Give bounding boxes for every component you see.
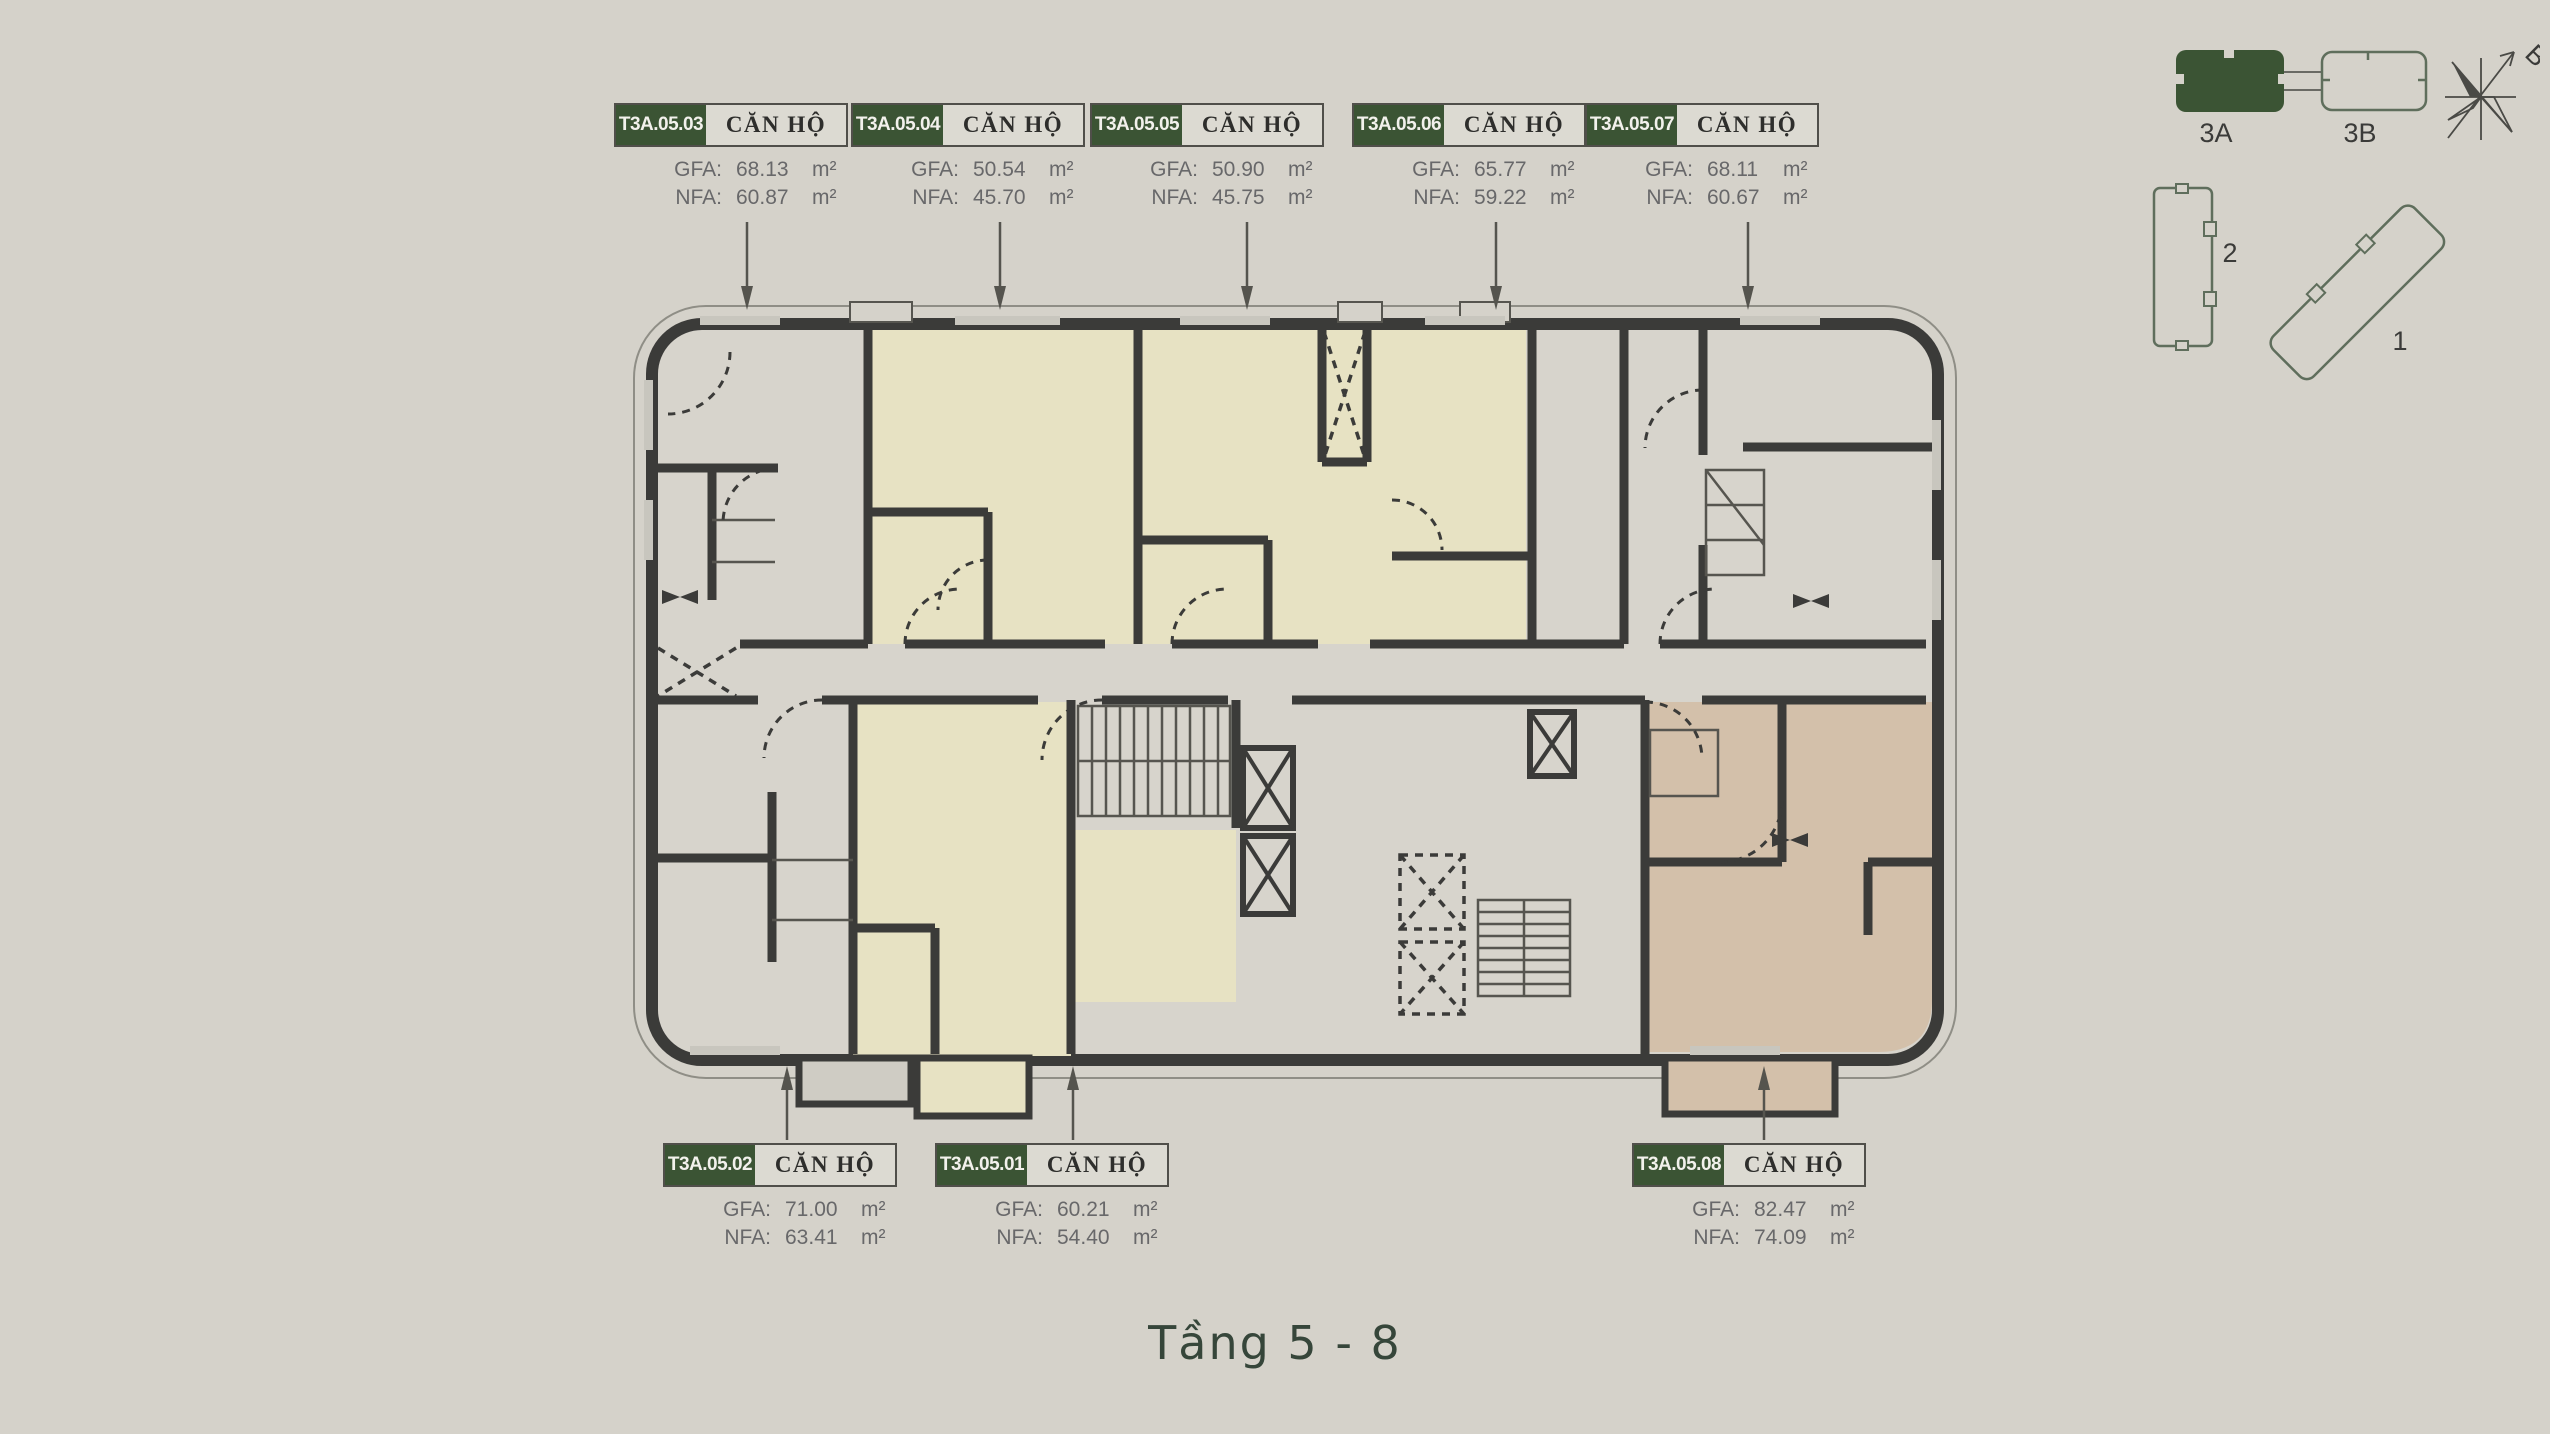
unit-area-t3a0501 bbox=[853, 702, 1071, 1056]
apartment-type-label: CĂN HỘ bbox=[1677, 105, 1817, 145]
gfa-row: GFA:71.00m² bbox=[719, 1196, 897, 1224]
unit-callout-t3a0508: T3A.05.08 CĂN HỘ GFA:82.47m² NFA:74.09m² bbox=[1632, 1066, 1866, 1252]
unit-code-badge: T3A.05.07 bbox=[1587, 105, 1677, 145]
unit-callout-t3a0506: T3A.05.06 CĂN HỘ GFA:65.77m² NFA:59.22m² bbox=[1352, 103, 1586, 212]
leader-arrow-up bbox=[779, 1066, 795, 1140]
nfa-row: NFA:60.87m² bbox=[670, 184, 848, 212]
unit-callout-t3a0505: T3A.05.05 CĂN HỘ GFA:50.90m² NFA:45.75m² bbox=[1090, 103, 1324, 212]
minimap-label-2: 2 bbox=[2222, 238, 2237, 268]
unit-areas: GFA:68.13m² NFA:60.87m² bbox=[614, 156, 848, 212]
unit-callout-t3a0504: T3A.05.04 CĂN HỘ GFA:50.54m² NFA:45.70m² bbox=[851, 103, 1085, 212]
apartment-type-label: CĂN HỘ bbox=[1027, 1145, 1167, 1185]
minimap-label-3a: 3A bbox=[2199, 118, 2232, 148]
leader-arrow-down bbox=[1740, 222, 1756, 310]
site-minimap: 3A 3B B 2 1 bbox=[2120, 10, 2540, 390]
unit-tag[interactable]: T3A.05.06 CĂN HỘ bbox=[1352, 103, 1586, 147]
unit-areas: GFA:60.21m² NFA:54.40m² bbox=[935, 1196, 1169, 1252]
nfa-row: NFA:60.67m² bbox=[1641, 184, 1819, 212]
minimap-tower-3a[interactable] bbox=[2172, 46, 2290, 112]
unit-code-badge: T3A.05.01 bbox=[937, 1145, 1027, 1185]
window-sill bbox=[850, 302, 912, 322]
unit-tag[interactable]: T3A.05.01 CĂN HỘ bbox=[935, 1143, 1169, 1187]
unit-tag[interactable]: T3A.05.04 CĂN HỘ bbox=[851, 103, 1085, 147]
page-title: Tầng 5 - 8 bbox=[0, 1316, 2550, 1370]
minimap-tower-3b[interactable] bbox=[2322, 52, 2426, 110]
floorplan-drawing bbox=[600, 270, 2000, 1140]
nfa-row: NFA:74.09m² bbox=[1688, 1224, 1866, 1252]
unit-tag[interactable]: T3A.05.08 CĂN HỘ bbox=[1632, 1143, 1866, 1187]
window-sill bbox=[1338, 302, 1382, 322]
unit-code-badge: T3A.05.04 bbox=[853, 105, 943, 145]
gfa-row: GFA:68.11m² bbox=[1641, 156, 1819, 184]
apartment-type-label: CĂN HỘ bbox=[755, 1145, 895, 1185]
unit-areas: GFA:68.11m² NFA:60.67m² bbox=[1585, 156, 1819, 212]
unit-area-top-cream bbox=[868, 330, 1526, 644]
compass-icon bbox=[2445, 52, 2516, 140]
minimap-building-1 bbox=[2262, 197, 2448, 383]
apartment-type-label: CĂN HỘ bbox=[1182, 105, 1322, 145]
leader-arrow-up bbox=[1065, 1066, 1081, 1140]
leader-arrow-down bbox=[992, 222, 1008, 310]
gfa-row: GFA:82.47m² bbox=[1688, 1196, 1866, 1224]
gfa-row: GFA:65.77m² bbox=[1408, 156, 1586, 184]
nfa-row: NFA:54.40m² bbox=[991, 1224, 1169, 1252]
unit-areas: GFA:65.77m² NFA:59.22m² bbox=[1352, 156, 1586, 212]
unit-tag[interactable]: T3A.05.07 CĂN HỘ bbox=[1585, 103, 1819, 147]
leader-arrow-down bbox=[739, 222, 755, 310]
unit-area-core-cream bbox=[1071, 830, 1236, 1002]
nfa-row: NFA:45.75m² bbox=[1146, 184, 1324, 212]
minimap-label-3b: 3B bbox=[2343, 118, 2376, 148]
apartment-type-label: CĂN HỘ bbox=[943, 105, 1083, 145]
unit-areas: GFA:82.47m² NFA:74.09m² bbox=[1632, 1196, 1866, 1252]
leader-arrow-down bbox=[1239, 222, 1255, 310]
unit-callout-t3a0507: T3A.05.07 CĂN HỘ GFA:68.11m² NFA:60.67m² bbox=[1585, 103, 1819, 212]
unit-areas: GFA:50.54m² NFA:45.70m² bbox=[851, 156, 1085, 212]
unit-areas: GFA:50.90m² NFA:45.75m² bbox=[1090, 156, 1324, 212]
unit-code-badge: T3A.05.02 bbox=[665, 1145, 755, 1185]
unit-tag[interactable]: T3A.05.02 CĂN HỘ bbox=[663, 1143, 897, 1187]
unit-code-badge: T3A.05.08 bbox=[1634, 1145, 1724, 1185]
apartment-type-label: CĂN HỘ bbox=[1444, 105, 1584, 145]
minimap-building-2 bbox=[2154, 184, 2216, 350]
nfa-row: NFA:63.41m² bbox=[719, 1224, 897, 1252]
nfa-row: NFA:59.22m² bbox=[1408, 184, 1586, 212]
gfa-row: GFA:60.21m² bbox=[991, 1196, 1169, 1224]
unit-callout-t3a0502: T3A.05.02 CĂN HỘ GFA:71.00m² NFA:63.41m² bbox=[663, 1066, 897, 1252]
unit-code-badge: T3A.05.03 bbox=[616, 105, 706, 145]
gfa-row: GFA:50.90m² bbox=[1146, 156, 1324, 184]
nfa-row: NFA:45.70m² bbox=[907, 184, 1085, 212]
unit-tag[interactable]: T3A.05.05 CĂN HỘ bbox=[1090, 103, 1324, 147]
apartment-type-label: CĂN HỘ bbox=[1724, 1145, 1864, 1185]
apartment-type-label: CĂN HỘ bbox=[706, 105, 846, 145]
unit-tag[interactable]: T3A.05.03 CĂN HỘ bbox=[614, 103, 848, 147]
unit-callout-t3a0503: T3A.05.03 CĂN HỘ GFA:68.13m² NFA:60.87m² bbox=[614, 103, 848, 212]
gfa-row: GFA:50.54m² bbox=[907, 156, 1085, 184]
unit-callout-t3a0501: T3A.05.01 CĂN HỘ GFA:60.21m² NFA:54.40m² bbox=[935, 1066, 1169, 1252]
unit-area-t3a0508 bbox=[1648, 702, 1932, 1052]
floorplan-page: 3A 3B B 2 1 bbox=[0, 0, 2550, 1434]
leader-arrow-up bbox=[1756, 1066, 1772, 1140]
leader-arrow-down bbox=[1488, 222, 1504, 310]
unit-code-badge: T3A.05.05 bbox=[1092, 105, 1182, 145]
unit-areas: GFA:71.00m² NFA:63.41m² bbox=[663, 1196, 897, 1252]
gfa-row: GFA:68.13m² bbox=[670, 156, 848, 184]
compass-north-label: B bbox=[2519, 39, 2540, 73]
unit-code-badge: T3A.05.06 bbox=[1354, 105, 1444, 145]
minimap-label-1: 1 bbox=[2392, 326, 2407, 356]
